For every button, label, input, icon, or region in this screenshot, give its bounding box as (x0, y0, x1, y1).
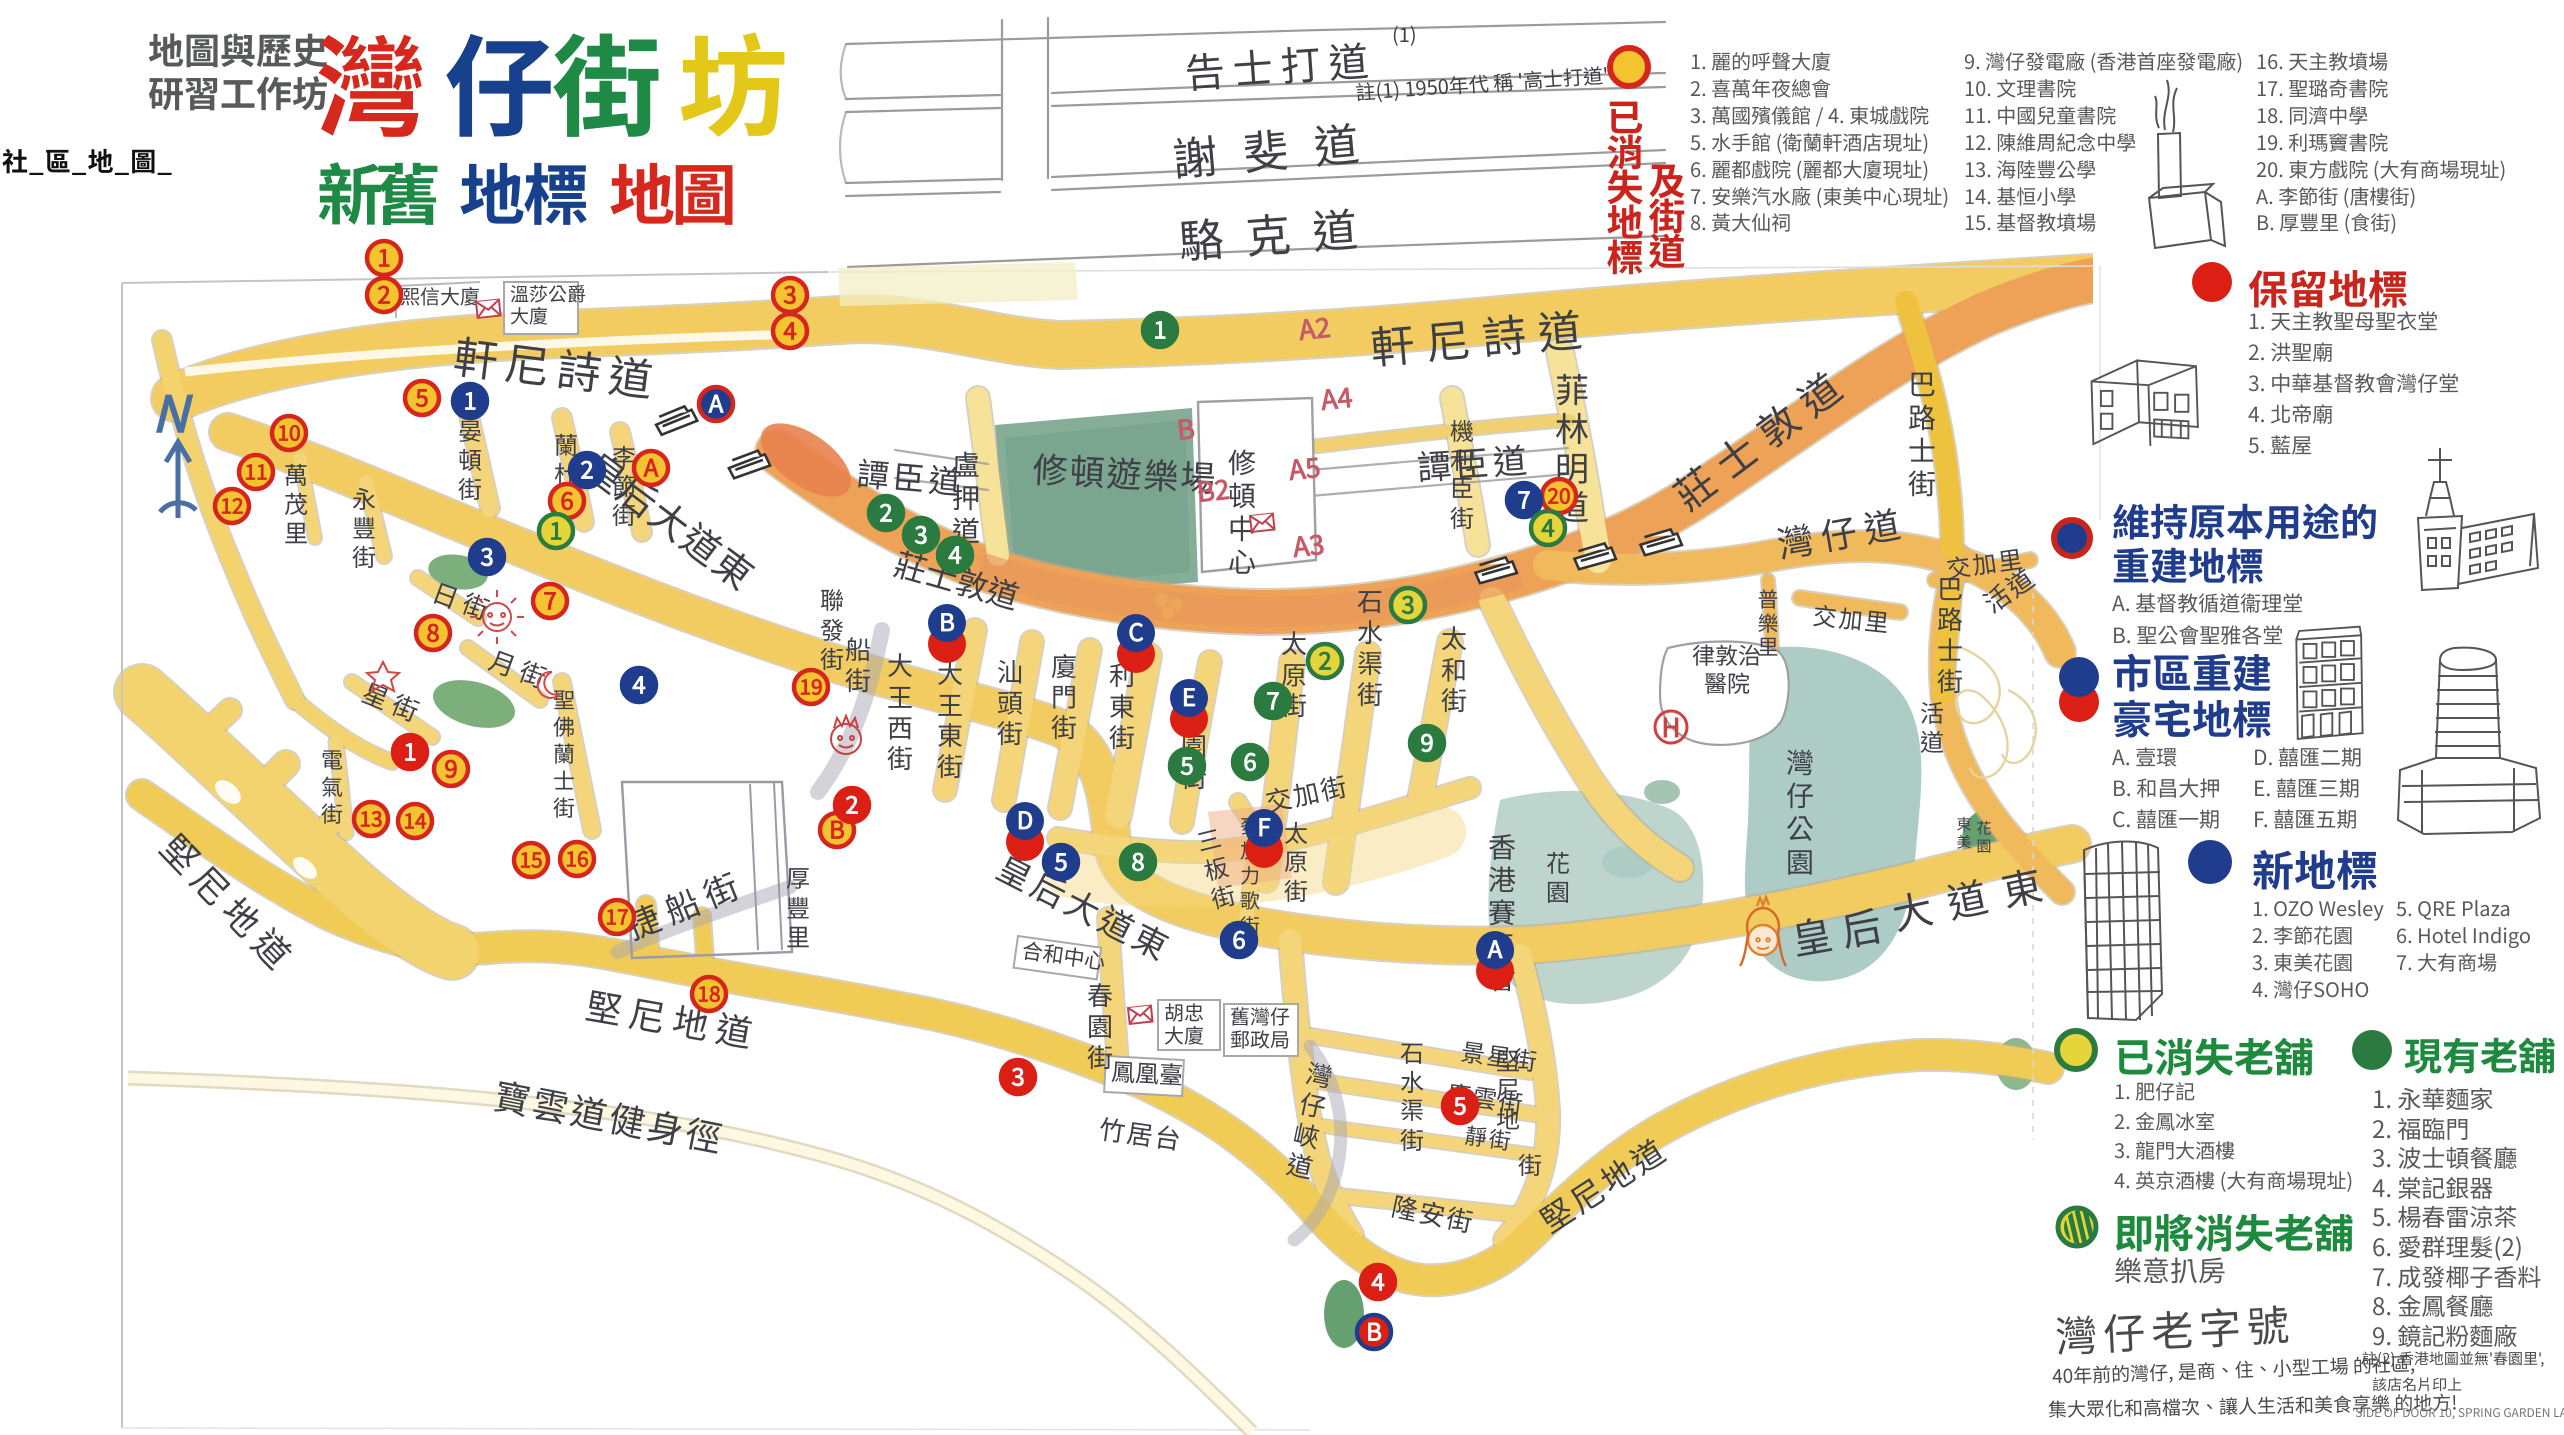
svg-text:8: 8 (1131, 843, 1144, 878)
svg-text:1: 1 (1153, 311, 1166, 346)
svg-text:9: 9 (444, 750, 457, 785)
svg-text:13: 13 (359, 804, 382, 834)
svg-text:7: 7 (543, 582, 556, 617)
svg-text:H: H (1662, 708, 1681, 745)
svg-text:(1): (1) (1392, 19, 1417, 48)
svg-text:12: 12 (220, 491, 243, 521)
svg-text:莊士敦道: 莊士敦道 (1660, 350, 1861, 521)
svg-text:普樂里: 普樂里 (1753, 588, 1783, 660)
svg-text:11: 11 (244, 457, 267, 487)
svg-text:16: 16 (565, 844, 589, 874)
svg-text:A: A (708, 385, 725, 420)
svg-text:5: 5 (415, 379, 428, 414)
svg-text:郵政局: 郵政局 (1230, 1024, 1290, 1053)
svg-text:告士打道: 告士打道 (1183, 29, 1379, 100)
svg-text:2: 2 (1318, 642, 1331, 677)
svg-text:晏頓街: 晏頓街 (453, 418, 488, 505)
svg-text:1: 1 (377, 239, 390, 274)
svg-text:D: D (1017, 801, 1034, 836)
svg-text:A2: A2 (1296, 306, 1332, 348)
svg-text:4: 4 (783, 312, 796, 347)
svg-text:大王東街: 大王東街 (932, 660, 969, 784)
svg-text:太和街: 太和街 (1436, 625, 1473, 718)
svg-text:A5: A5 (1286, 446, 1322, 488)
svg-text:20: 20 (1547, 481, 1570, 511)
svg-text:巴路士街: 巴路士街 (1902, 370, 1942, 502)
svg-text:B2: B2 (1195, 468, 1232, 510)
svg-text:2: 2 (845, 786, 858, 821)
svg-text:B: B (1366, 1313, 1382, 1348)
svg-text:大廈: 大廈 (1164, 1020, 1204, 1049)
svg-text:4: 4 (632, 666, 645, 701)
svg-text:3: 3 (480, 538, 493, 573)
svg-text:捷船街: 捷船街 (617, 857, 752, 950)
svg-text:6: 6 (1243, 743, 1256, 778)
svg-text:街: 街 (1513, 1152, 1548, 1181)
svg-text:9: 9 (1420, 724, 1433, 759)
svg-text:E: E (1182, 678, 1196, 713)
svg-text:3: 3 (1401, 586, 1414, 621)
svg-text:註(1) 1950年代 稱 '高士打道': 註(1) 1950年代 稱 '高士打道' (1354, 59, 1609, 106)
svg-text:4: 4 (1541, 509, 1554, 544)
svg-text:N: N (152, 375, 194, 447)
svg-text:厚豐里: 厚豐里 (781, 866, 816, 953)
svg-text:3: 3 (1011, 1058, 1024, 1093)
svg-text:A3: A3 (1290, 523, 1326, 565)
svg-text:10: 10 (277, 418, 300, 448)
svg-text:萬茂里: 萬茂里 (279, 462, 314, 549)
svg-text:修頓遊樂場: 修頓遊樂場 (1031, 442, 1218, 503)
svg-text:利東街: 利東街 (1104, 662, 1141, 755)
svg-text:1: 1 (403, 733, 416, 768)
svg-text:A: A (1487, 930, 1504, 965)
svg-text:電氣街: 電氣街 (316, 748, 348, 829)
svg-text:2: 2 (377, 276, 390, 311)
svg-text:A: A (643, 449, 660, 484)
svg-text:巴路士街: 巴路士街 (1932, 575, 1969, 699)
svg-text:聖佛蘭士街: 聖佛蘭士街 (548, 688, 580, 823)
svg-text:F: F (1257, 808, 1270, 843)
svg-text:堅尼地: 堅尼地 (1491, 1048, 1526, 1135)
svg-text:5: 5 (1453, 1087, 1466, 1122)
svg-text:1: 1 (463, 382, 476, 417)
svg-text:隆安街: 隆安街 (1388, 1187, 1478, 1241)
svg-text:盧押道: 盧押道 (946, 450, 986, 549)
svg-text:4: 4 (948, 536, 961, 571)
svg-text:7: 7 (1517, 481, 1530, 516)
svg-text:14: 14 (403, 806, 427, 836)
svg-text:聯發街: 聯發街 (815, 588, 850, 675)
svg-text:6: 6 (1232, 921, 1245, 956)
svg-text:2: 2 (879, 494, 892, 529)
svg-text:5: 5 (1180, 747, 1193, 782)
svg-text:灣仔公園: 灣仔公園 (1780, 748, 1820, 880)
svg-text:B: B (939, 603, 955, 638)
svg-text:活道: 活道 (1915, 700, 1950, 758)
svg-text:寶雲道健身徑: 寶雲道健身徑 (490, 1068, 730, 1164)
svg-text:3: 3 (914, 516, 927, 551)
svg-text:星街: 星街 (357, 673, 430, 731)
svg-text:花園: 花園 (1974, 820, 1995, 856)
svg-text:花園: 花園 (1541, 850, 1576, 908)
svg-text:A4: A4 (1318, 376, 1354, 418)
svg-text:8: 8 (426, 614, 439, 649)
svg-text:石水渠街: 石水渠街 (1395, 1040, 1430, 1156)
svg-text:鳳凰臺: 鳳凰臺 (1110, 1052, 1184, 1091)
svg-text:C: C (1128, 613, 1144, 648)
svg-text:機利臣街: 機利臣街 (1445, 418, 1480, 534)
svg-text:春園街: 春園街 (1082, 982, 1119, 1075)
svg-text:5: 5 (1054, 843, 1067, 878)
svg-text:駱克道: 駱克道 (1176, 192, 1381, 271)
svg-text:1: 1 (549, 512, 562, 547)
svg-text:醫院: 醫院 (1704, 665, 1750, 699)
svg-text:石水渠街: 石水渠街 (1352, 588, 1389, 712)
svg-text:4: 4 (1371, 1263, 1384, 1298)
svg-text:大王西街: 大王西街 (882, 652, 919, 776)
svg-text:東美: 東美 (1954, 816, 1975, 852)
svg-text:廈門街: 廈門街 (1046, 652, 1083, 745)
svg-text:永豐街: 永豐街 (347, 486, 382, 573)
svg-text:交加里: 交加里 (1811, 596, 1892, 639)
svg-text:汕頭街: 汕頭街 (992, 658, 1029, 751)
svg-text:修頓中心: 修頓中心 (1222, 448, 1262, 580)
svg-text:2: 2 (580, 451, 593, 486)
svg-text:15: 15 (519, 845, 542, 875)
svg-text:7: 7 (1266, 682, 1279, 717)
svg-text:19: 19 (799, 672, 822, 702)
svg-text:大廈: 大廈 (510, 302, 548, 329)
svg-text:B: B (1175, 407, 1197, 448)
svg-text:18: 18 (697, 979, 721, 1009)
svg-text:3: 3 (783, 276, 796, 311)
svg-text:太原街: 太原街 (1279, 820, 1314, 907)
svg-text:17: 17 (605, 902, 629, 932)
